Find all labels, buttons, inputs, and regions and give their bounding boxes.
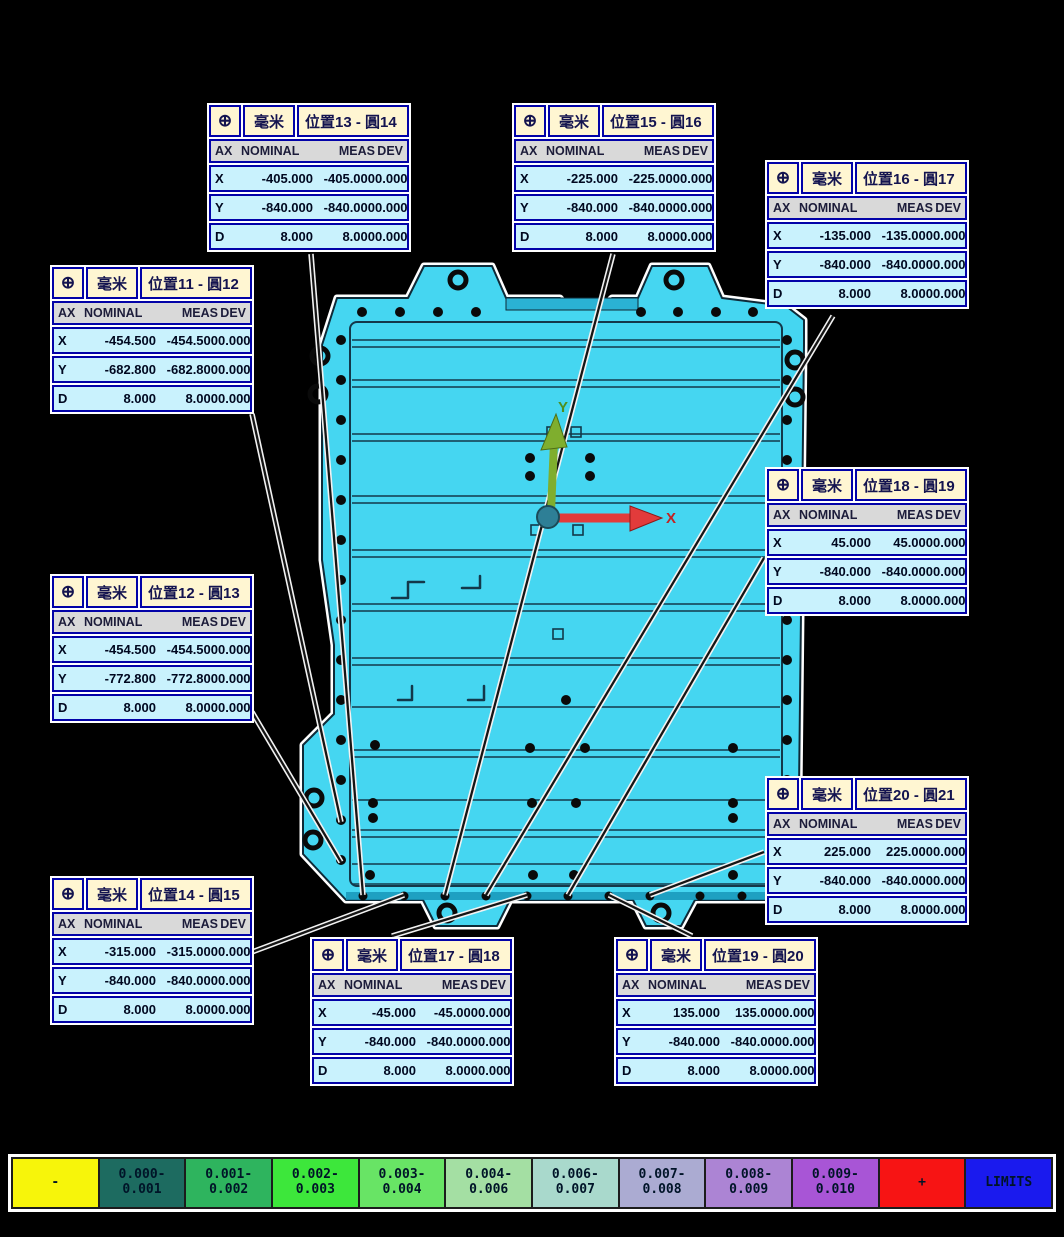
measured-circle: [696, 892, 705, 901]
nominal-value: 135.000: [648, 1005, 720, 1020]
nominal-value: -840.000: [799, 564, 871, 579]
measurement-row-d: D8.0008.0000.000: [767, 280, 967, 307]
hole-dot: [357, 307, 367, 317]
measurement-row-d: D8.0008.0000.000: [616, 1057, 816, 1084]
hole-dot: [711, 307, 721, 317]
axis-name: D: [773, 902, 799, 917]
unit-label: 毫米: [650, 939, 702, 971]
axis-name: D: [58, 391, 84, 406]
hole-dot: [368, 813, 378, 823]
legend-cell-0.000-0.001[interactable]: 0.000- 0.001: [98, 1157, 187, 1209]
col-ax: AX: [58, 917, 84, 931]
unit-label: 毫米: [243, 105, 295, 137]
measurement-row-x: X-135.000-135.0000.000: [767, 222, 967, 249]
legend-cell-0.007-0.008[interactable]: 0.007- 0.008: [618, 1157, 707, 1209]
hole-dot: [365, 870, 375, 880]
nominal-value: 8.000: [84, 391, 156, 406]
measurement-callout-pos13[interactable]: ⊕ 毫米 位置13 - 圓14 AX NOMINAL MEAS DEV X-40…: [207, 103, 411, 252]
measurement-row-y: Y-840.000-840.0000.000: [312, 1028, 512, 1055]
meas-value: -45.000: [416, 1005, 478, 1020]
measurement-row-y: Y-840.000-840.0000.000: [52, 967, 252, 994]
callout-title: 位置17 - 圓18: [400, 939, 512, 971]
column-header-row: AX NOMINAL MEAS DEV: [312, 973, 512, 997]
callout-header: ⊕ 毫米 位置11 - 圓12: [52, 267, 252, 299]
axis-name: Y: [520, 200, 546, 215]
measurement-callout-pos15[interactable]: ⊕ 毫米 位置15 - 圓16 AX NOMINAL MEAS DEV X-22…: [512, 103, 716, 252]
column-header-row: AX NOMINAL MEAS DEV: [52, 301, 252, 325]
meas-value: 8.000: [720, 1063, 782, 1078]
position-feature-icon: ⊕: [209, 105, 241, 137]
axis-name: D: [215, 229, 241, 244]
hole-dot: [336, 735, 346, 745]
hole-dot: [336, 535, 346, 545]
dev-value: 0.000: [218, 700, 251, 715]
meas-value: -135.000: [871, 228, 933, 243]
measurement-row-y: Y-772.800-772.8000.000: [52, 665, 252, 692]
axis-name: X: [318, 1005, 344, 1020]
position-feature-icon: ⊕: [52, 576, 84, 608]
col-nominal: NOMINAL: [344, 978, 416, 992]
measurement-row-x: X-454.500-454.5000.000: [52, 327, 252, 354]
legend-cell-0.003-0.004[interactable]: 0.003- 0.004: [358, 1157, 447, 1209]
column-header-row: AX NOMINAL MEAS DEV: [767, 503, 967, 527]
meas-value: -682.800: [156, 362, 218, 377]
measurement-callout-pos18[interactable]: ⊕ 毫米 位置18 - 圓19 AX NOMINAL MEAS DEV X45.…: [765, 467, 969, 616]
measurement-row-d: D8.0008.0000.000: [514, 223, 714, 250]
measurement-callout-pos17[interactable]: ⊕ 毫米 位置17 - 圓18 AX NOMINAL MEAS DEV X-45…: [310, 937, 514, 1086]
position-feature-icon: ⊕: [52, 878, 84, 910]
hole-dot: [370, 740, 380, 750]
hole-dot: [748, 307, 758, 317]
callout-header: ⊕ 毫米 位置20 - 圓21: [767, 778, 967, 810]
axis-name: X: [773, 844, 799, 859]
nominal-value: 8.000: [546, 229, 618, 244]
legend-cell-0.008-0.009[interactable]: 0.008- 0.009: [704, 1157, 793, 1209]
meas-value: 8.000: [416, 1063, 478, 1078]
callout-title: 位置19 - 圓20: [704, 939, 816, 971]
col-meas: MEAS: [156, 917, 218, 931]
measurement-row-y: Y-840.000-840.0000.000: [209, 194, 409, 221]
meas-value: -840.000: [720, 1034, 782, 1049]
callout-title: 位置15 - 圓16: [602, 105, 714, 137]
hole-dot: [571, 798, 581, 808]
axis-name: D: [318, 1063, 344, 1078]
meas-value: -840.000: [871, 873, 933, 888]
callout-header: ⊕ 毫米 位置15 - 圓16: [514, 105, 714, 137]
hole-dot: [673, 307, 683, 317]
hole-dot: [636, 307, 646, 317]
nominal-value: -840.000: [546, 200, 618, 215]
meas-value: -454.500: [156, 642, 218, 657]
dev-value: 0.000: [782, 1034, 815, 1049]
nominal-value: -454.500: [84, 333, 156, 348]
nominal-value: -840.000: [799, 873, 871, 888]
nominal-value: -45.000: [344, 1005, 416, 1020]
axis-name: X: [773, 535, 799, 550]
col-dev: DEV: [218, 917, 246, 931]
col-ax: AX: [58, 306, 84, 320]
measured-circle: [738, 892, 747, 901]
col-ax: AX: [622, 978, 648, 992]
axis-name: Y: [622, 1034, 648, 1049]
hole-dot: [395, 307, 405, 317]
column-header-row: AX NOMINAL MEAS DEV: [209, 139, 409, 163]
col-dev: DEV: [218, 306, 246, 320]
axis-name: D: [58, 1002, 84, 1017]
meas-value: -840.000: [618, 200, 680, 215]
measurement-callout-pos12[interactable]: ⊕ 毫米 位置12 - 圓13 AX NOMINAL MEAS DEV X-45…: [50, 574, 254, 723]
col-nominal: NOMINAL: [84, 306, 156, 320]
callout-header: ⊕ 毫米 位置16 - 圓17: [767, 162, 967, 194]
nominal-value: 8.000: [241, 229, 313, 244]
position-feature-icon: ⊕: [767, 162, 799, 194]
col-dev: DEV: [218, 615, 246, 629]
y-axis-arrow: [551, 442, 554, 512]
dev-value: 0.000: [933, 257, 966, 272]
col-nominal: NOMINAL: [799, 817, 871, 831]
measurement-row-x: X225.000225.0000.000: [767, 838, 967, 865]
axis-name: X: [520, 171, 546, 186]
meas-value: -454.500: [156, 333, 218, 348]
measurement-row-y: Y-840.000-840.0000.000: [767, 558, 967, 585]
hole-dot: [782, 735, 792, 745]
col-meas: MEAS: [720, 978, 782, 992]
callout-title: 位置18 - 圓19: [855, 469, 967, 501]
axis-name: X: [622, 1005, 648, 1020]
legend-cell-0.006-0.007[interactable]: 0.006- 0.007: [531, 1157, 620, 1209]
dev-value: 0.000: [680, 229, 713, 244]
measurement-row-x: X-225.000-225.0000.000: [514, 165, 714, 192]
col-ax: AX: [520, 144, 546, 158]
legend-cell-limits[interactable]: LIMITS: [964, 1157, 1053, 1209]
measurement-row-x: X-405.000-405.0000.000: [209, 165, 409, 192]
dev-value: 0.000: [218, 1002, 251, 1017]
meas-value: 8.000: [156, 700, 218, 715]
col-nominal: NOMINAL: [84, 917, 156, 931]
dev-value: 0.000: [218, 391, 251, 406]
measurement-row-d: D8.0008.0000.000: [767, 896, 967, 923]
dev-value: 0.000: [218, 642, 251, 657]
nominal-value: -454.500: [84, 642, 156, 657]
legend-cell-minus[interactable]: -: [11, 1157, 100, 1209]
measurement-row-x: X-454.500-454.5000.000: [52, 636, 252, 663]
axis-name: Y: [215, 200, 241, 215]
column-header-row: AX NOMINAL MEAS DEV: [52, 610, 252, 634]
callout-title: 位置16 - 圓17: [855, 162, 967, 194]
callout-title: 位置20 - 圓21: [855, 778, 967, 810]
col-nominal: NOMINAL: [241, 144, 313, 158]
measurement-row-x: X45.00045.0000.000: [767, 529, 967, 556]
axis-name: D: [773, 286, 799, 301]
col-ax: AX: [773, 201, 799, 215]
nominal-value: 8.000: [344, 1063, 416, 1078]
legend-cell-0.009-0.010[interactable]: 0.009- 0.010: [791, 1157, 880, 1209]
unit-label: 毫米: [801, 469, 853, 501]
axis-name: Y: [773, 257, 799, 272]
callout-title: 位置13 - 圓14: [297, 105, 409, 137]
col-ax: AX: [773, 508, 799, 522]
col-meas: MEAS: [313, 144, 375, 158]
x-axis-label: X: [666, 510, 676, 527]
col-dev: DEV: [933, 508, 961, 522]
dev-value: 0.000: [218, 944, 251, 959]
col-nominal: NOMINAL: [648, 978, 720, 992]
position-feature-icon: ⊕: [767, 778, 799, 810]
col-nominal: NOMINAL: [799, 508, 871, 522]
dev-value: 0.000: [933, 844, 966, 859]
callout-title: 位置12 - 圓13: [140, 576, 252, 608]
callout-title: 位置14 - 圓15: [140, 878, 252, 910]
dev-value: 0.000: [782, 1063, 815, 1078]
position-feature-icon: ⊕: [312, 939, 344, 971]
callout-header: ⊕ 毫米 位置18 - 圓19: [767, 469, 967, 501]
hole-dot: [528, 870, 538, 880]
unit-label: 毫米: [548, 105, 600, 137]
measurement-row-y: Y-840.000-840.0000.000: [767, 251, 967, 278]
axis-name: Y: [318, 1034, 344, 1049]
hole-dot: [782, 455, 792, 465]
hole-dot: [728, 870, 738, 880]
col-meas: MEAS: [156, 615, 218, 629]
dev-value: 0.000: [218, 362, 251, 377]
meas-value: 8.000: [871, 902, 933, 917]
hole-dot: [782, 695, 792, 705]
dev-value: 0.000: [375, 229, 408, 244]
axis-name: Y: [58, 362, 84, 377]
measurement-callout-pos20[interactable]: ⊕ 毫米 位置20 - 圓21 AX NOMINAL MEAS DEV X225…: [765, 776, 969, 925]
nominal-value: 8.000: [799, 902, 871, 917]
measurement-row-x: X-315.000-315.0000.000: [52, 938, 252, 965]
col-meas: MEAS: [156, 306, 218, 320]
dev-value: 0.000: [218, 973, 251, 988]
measurement-callout-pos14[interactable]: ⊕ 毫米 位置14 - 圓15 AX NOMINAL MEAS DEV X-31…: [50, 876, 254, 1025]
measurement-row-x: X-45.000-45.0000.000: [312, 999, 512, 1026]
axis-name: Y: [773, 564, 799, 579]
hole-dot: [782, 615, 792, 625]
col-meas: MEAS: [871, 508, 933, 522]
y-axis-label: Y: [558, 399, 568, 416]
col-ax: AX: [318, 978, 344, 992]
dev-value: 0.000: [375, 171, 408, 186]
col-dev: DEV: [375, 144, 403, 158]
meas-value: 8.000: [156, 391, 218, 406]
measurement-row-d: D8.0008.0000.000: [52, 996, 252, 1023]
axis-name: X: [58, 642, 84, 657]
col-dev: DEV: [478, 978, 506, 992]
meas-value: -840.000: [156, 973, 218, 988]
position-feature-icon: ⊕: [616, 939, 648, 971]
dev-value: 0.000: [218, 333, 251, 348]
dev-value: 0.000: [478, 1063, 511, 1078]
legend-cell-0.001-0.002[interactable]: 0.001- 0.002: [184, 1157, 273, 1209]
col-nominal: NOMINAL: [84, 615, 156, 629]
nominal-value: -315.000: [84, 944, 156, 959]
column-header-row: AX NOMINAL MEAS DEV: [514, 139, 714, 163]
col-nominal: NOMINAL: [546, 144, 618, 158]
legend-cell-plus[interactable]: +: [878, 1157, 967, 1209]
dev-value: 0.000: [933, 564, 966, 579]
unit-label: 毫米: [346, 939, 398, 971]
measurement-callout-pos19[interactable]: ⊕ 毫米 位置19 - 圓20 AX NOMINAL MEAS DEV X135…: [614, 937, 818, 1086]
dev-value: 0.000: [782, 1005, 815, 1020]
nominal-value: 8.000: [84, 700, 156, 715]
col-dev: DEV: [680, 144, 708, 158]
hole-dot: [336, 375, 346, 385]
col-nominal: NOMINAL: [799, 201, 871, 215]
hole-dot: [368, 798, 378, 808]
measurement-row-d: D8.0008.0000.000: [209, 223, 409, 250]
dev-value: 0.000: [933, 902, 966, 917]
axis-name: X: [773, 228, 799, 243]
measurement-row-y: Y-840.000-840.0000.000: [616, 1028, 816, 1055]
nominal-value: -135.000: [799, 228, 871, 243]
position-feature-icon: ⊕: [52, 267, 84, 299]
unit-label: 毫米: [86, 878, 138, 910]
measurement-row-y: Y-682.800-682.8000.000: [52, 356, 252, 383]
meas-value: -225.000: [618, 171, 680, 186]
meas-value: 8.000: [871, 286, 933, 301]
col-ax: AX: [215, 144, 241, 158]
measurement-callout-pos16[interactable]: ⊕ 毫米 位置16 - 圓17 AX NOMINAL MEAS DEV X-13…: [765, 160, 969, 309]
nominal-value: -840.000: [241, 200, 313, 215]
hole-dot: [471, 307, 481, 317]
meas-value: 8.000: [156, 1002, 218, 1017]
nominal-value: -772.800: [84, 671, 156, 686]
meas-value: -840.000: [871, 564, 933, 579]
dev-value: 0.000: [478, 1005, 511, 1020]
dev-value: 0.000: [933, 286, 966, 301]
nominal-value: -840.000: [84, 973, 156, 988]
column-header-row: AX NOMINAL MEAS DEV: [616, 973, 816, 997]
meas-value: 135.000: [720, 1005, 782, 1020]
hole-dot: [728, 743, 738, 753]
measurement-row-d: D8.0008.0000.000: [312, 1057, 512, 1084]
axis-name: X: [58, 944, 84, 959]
col-meas: MEAS: [618, 144, 680, 158]
hole-dot: [336, 335, 346, 345]
nominal-value: 8.000: [84, 1002, 156, 1017]
hole-dot: [585, 453, 595, 463]
dev-value: 0.000: [933, 228, 966, 243]
measurement-row-d: D8.0008.0000.000: [52, 694, 252, 721]
measurement-row-d: D8.0008.0000.000: [767, 587, 967, 614]
axis-name: D: [773, 593, 799, 608]
hole-dot: [525, 743, 535, 753]
dev-value: 0.000: [375, 200, 408, 215]
dev-value: 0.000: [680, 171, 713, 186]
callout-header: ⊕ 毫米 位置14 - 圓15: [52, 878, 252, 910]
legend-cell-0.004-0.006[interactable]: 0.004- 0.006: [444, 1157, 533, 1209]
measurement-row-d: D8.0008.0000.000: [52, 385, 252, 412]
part-body: [303, 266, 804, 926]
unit-label: 毫米: [86, 576, 138, 608]
axis-name: Y: [58, 973, 84, 988]
meas-value: -315.000: [156, 944, 218, 959]
top-notch-shade: [506, 298, 638, 310]
hole-dot: [585, 471, 595, 481]
meas-value: -840.000: [871, 257, 933, 272]
col-dev: DEV: [933, 201, 961, 215]
nominal-value: -225.000: [546, 171, 618, 186]
axis-name: D: [58, 700, 84, 715]
axis-name: X: [215, 171, 241, 186]
dev-value: 0.000: [933, 535, 966, 550]
meas-value: 225.000: [871, 844, 933, 859]
hole-dot: [580, 743, 590, 753]
meas-value: -772.800: [156, 671, 218, 686]
col-ax: AX: [773, 817, 799, 831]
meas-value: 8.000: [313, 229, 375, 244]
callout-header: ⊕ 毫米 位置13 - 圓14: [209, 105, 409, 137]
unit-label: 毫米: [801, 778, 853, 810]
dev-value: 0.000: [218, 671, 251, 686]
hole-dot: [561, 695, 571, 705]
nominal-value: -840.000: [344, 1034, 416, 1049]
measurement-scene: Y X ⊕ 毫米 位置11 - 圓12 AX NOMINAL MEAS DEV …: [0, 0, 1064, 1148]
axis-name: X: [58, 333, 84, 348]
meas-value: 8.000: [871, 593, 933, 608]
measurement-row-y: Y-840.000-840.0000.000: [514, 194, 714, 221]
col-meas: MEAS: [871, 201, 933, 215]
nominal-value: -840.000: [799, 257, 871, 272]
col-dev: DEV: [782, 978, 810, 992]
meas-value: -405.000: [313, 171, 375, 186]
axis-name: D: [622, 1063, 648, 1078]
col-meas: MEAS: [871, 817, 933, 831]
callout-header: ⊕ 毫米 位置12 - 圓13: [52, 576, 252, 608]
hole-dot: [782, 335, 792, 345]
axis-name: Y: [58, 671, 84, 686]
nominal-value: 8.000: [648, 1063, 720, 1078]
hole-dot: [433, 307, 443, 317]
hole-dot: [525, 471, 535, 481]
hole-dot: [527, 798, 537, 808]
nominal-value: 225.000: [799, 844, 871, 859]
hole-dot: [336, 495, 346, 505]
hole-dot: [525, 453, 535, 463]
nominal-value: -682.800: [84, 362, 156, 377]
legend-cell-0.002-0.003[interactable]: 0.002- 0.003: [271, 1157, 360, 1209]
hole-dot: [728, 813, 738, 823]
column-header-row: AX NOMINAL MEAS DEV: [767, 812, 967, 836]
dev-value: 0.000: [933, 593, 966, 608]
position-feature-icon: ⊕: [767, 469, 799, 501]
meas-value: -840.000: [313, 200, 375, 215]
dev-value: 0.000: [933, 873, 966, 888]
axis-name: Y: [773, 873, 799, 888]
measurement-row-y: Y-840.000-840.0000.000: [767, 867, 967, 894]
callout-title: 位置11 - 圓12: [140, 267, 252, 299]
meas-value: 8.000: [618, 229, 680, 244]
hole-dot: [336, 415, 346, 425]
nominal-value: 8.000: [799, 593, 871, 608]
axis-name: D: [520, 229, 546, 244]
nominal-value: -405.000: [241, 171, 313, 186]
nominal-value: -840.000: [648, 1034, 720, 1049]
unit-label: 毫米: [801, 162, 853, 194]
col-dev: DEV: [933, 817, 961, 831]
measurement-row-x: X135.000135.0000.000: [616, 999, 816, 1026]
hole-dot: [782, 655, 792, 665]
hole-dot: [336, 775, 346, 785]
nominal-value: 45.000: [799, 535, 871, 550]
col-ax: AX: [58, 615, 84, 629]
hole-dot: [728, 798, 738, 808]
meas-value: 45.000: [871, 535, 933, 550]
tolerance-color-legend: -0.000- 0.0010.001- 0.0020.002- 0.0030.0…: [8, 1154, 1056, 1212]
measurement-callout-pos11[interactable]: ⊕ 毫米 位置11 - 圓12 AX NOMINAL MEAS DEV X-45…: [50, 265, 254, 414]
dev-value: 0.000: [478, 1034, 511, 1049]
